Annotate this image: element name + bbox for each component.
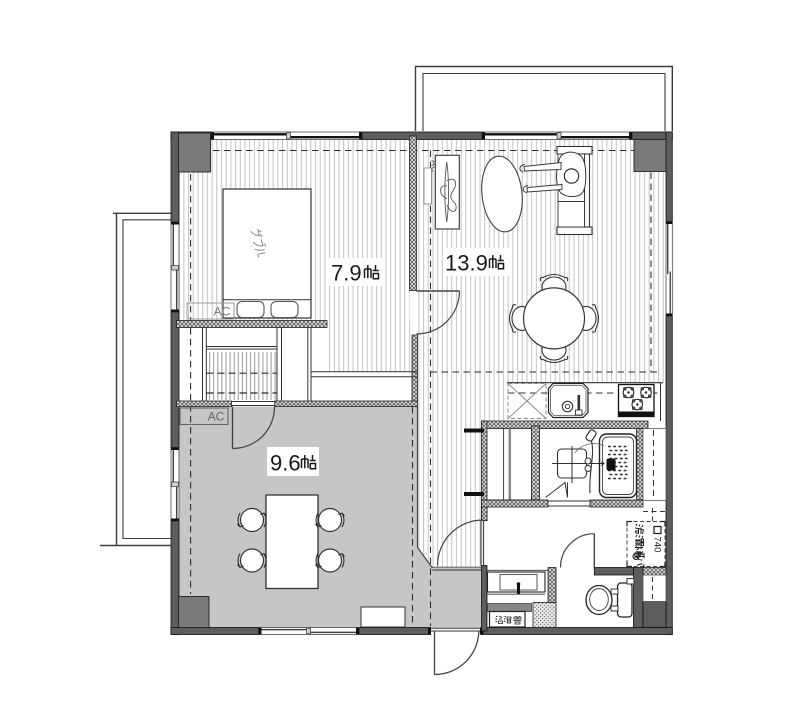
svg-text:AC: AC	[214, 305, 231, 319]
svg-text:740: 740	[652, 537, 663, 553]
svg-text:7.9: 7.9	[331, 261, 362, 286]
svg-text:9.6: 9.6	[270, 451, 301, 476]
svg-text:AC: AC	[208, 410, 225, 424]
svg-text:13.9: 13.9	[445, 251, 488, 276]
